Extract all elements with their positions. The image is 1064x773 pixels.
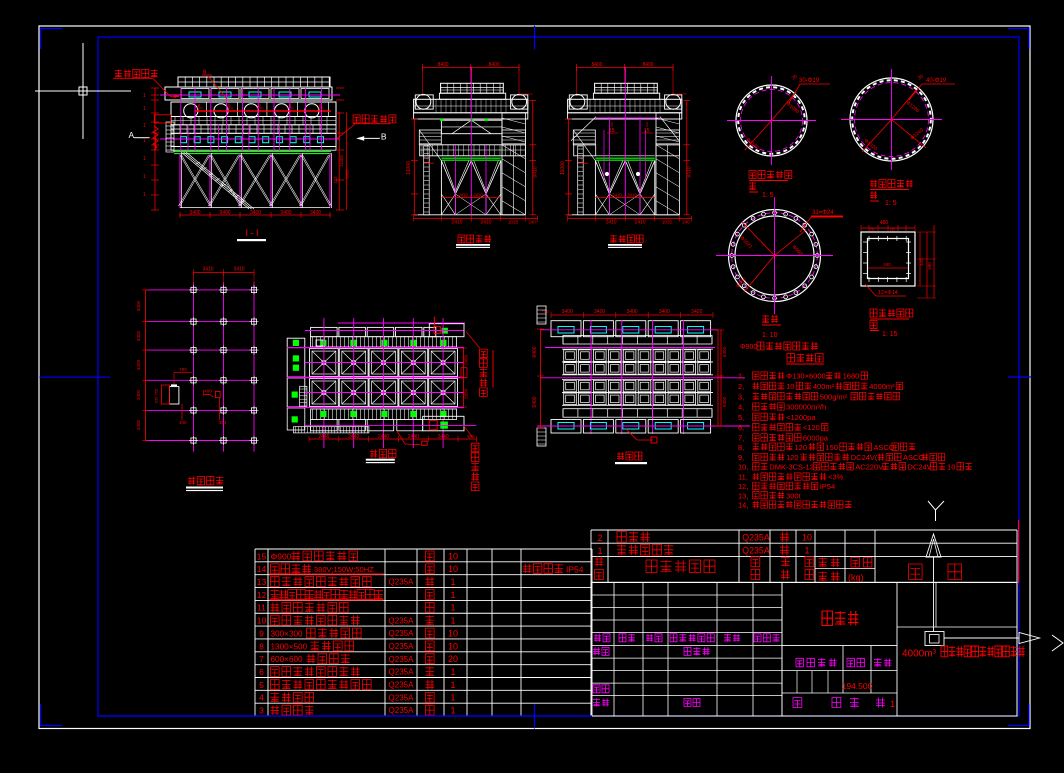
svg-text:6,: 6, xyxy=(738,423,744,432)
svg-text:1: 15: 1: 15 xyxy=(882,331,898,338)
svg-text:3400: 3400 xyxy=(594,309,605,315)
svg-text:9,: 9, xyxy=(738,453,744,462)
svg-text:DC24V: DC24V xyxy=(908,462,932,471)
svg-text:120: 120 xyxy=(795,443,808,452)
svg-text:630: 630 xyxy=(154,396,159,403)
svg-text:1680: 1680 xyxy=(843,372,860,381)
svg-text:400m²: 400m² xyxy=(813,382,835,391)
svg-text:6: 6 xyxy=(259,667,264,677)
svg-text:340: 340 xyxy=(883,262,891,267)
svg-text:DMK-3CS-12: DMK-3CS-12 xyxy=(769,462,814,471)
svg-text:432: 432 xyxy=(333,176,338,184)
svg-text:Q235A: Q235A xyxy=(389,629,415,638)
svg-text:500g/m²: 500g/m² xyxy=(820,392,848,401)
svg-text:755: 755 xyxy=(154,388,159,395)
svg-text:1: 5: 1: 5 xyxy=(885,200,897,207)
svg-text:5,: 5, xyxy=(738,413,744,422)
svg-text:2850: 2850 xyxy=(464,388,469,399)
svg-text:4000m³: 4000m³ xyxy=(902,649,937,660)
svg-text:3400: 3400 xyxy=(136,300,141,311)
svg-text:3400: 3400 xyxy=(280,210,291,216)
svg-text:1: 1 xyxy=(450,680,455,690)
svg-text:10: 10 xyxy=(448,551,458,561)
svg-text:11000: 11000 xyxy=(406,161,412,175)
svg-text:300t: 300t xyxy=(786,491,802,500)
svg-text:12=Φ14: 12=Φ14 xyxy=(878,290,898,296)
svg-text:<120: <120 xyxy=(803,423,820,432)
svg-text:30-Φ19: 30-Φ19 xyxy=(799,78,820,84)
svg-text:3400: 3400 xyxy=(310,210,321,216)
svg-text:8400: 8400 xyxy=(591,62,602,68)
svg-text:5400: 5400 xyxy=(722,346,727,357)
svg-text:10: 10 xyxy=(448,641,458,651)
svg-text:3400: 3400 xyxy=(189,210,200,216)
svg-text:120: 120 xyxy=(786,453,799,462)
svg-text:8400: 8400 xyxy=(437,62,448,68)
svg-text:1,: 1, xyxy=(738,372,744,381)
svg-text:ASCO: ASCO xyxy=(903,453,924,462)
svg-text:2410: 2410 xyxy=(634,219,645,225)
svg-text:.: . xyxy=(853,501,855,510)
svg-text:15: 15 xyxy=(257,551,267,561)
svg-text:A: A xyxy=(129,130,135,140)
svg-text:11,: 11, xyxy=(738,473,748,482)
svg-text:2440: 2440 xyxy=(438,434,449,440)
svg-text:B: B xyxy=(381,132,387,142)
svg-text:8400: 8400 xyxy=(532,396,538,407)
svg-text:1: 1 xyxy=(143,93,146,99)
svg-text:2: 2 xyxy=(597,533,602,543)
svg-text:IP54: IP54 xyxy=(566,565,584,575)
svg-text:10,: 10, xyxy=(738,462,748,471)
svg-text:1: 1 xyxy=(450,590,455,600)
svg-text:3400: 3400 xyxy=(136,359,141,370)
svg-text:11000: 11000 xyxy=(560,161,566,175)
svg-text:<1200pa: <1200pa xyxy=(786,413,816,422)
svg-text:9: 9 xyxy=(259,628,264,638)
svg-text:1: 1 xyxy=(450,603,455,613)
svg-text:3400: 3400 xyxy=(136,419,141,430)
svg-text:Q235A: Q235A xyxy=(389,578,415,587)
svg-text:Q235A: Q235A xyxy=(742,533,770,543)
svg-text:Φ900: Φ900 xyxy=(271,551,292,561)
svg-text:8: 8 xyxy=(259,641,264,651)
svg-text:10: 10 xyxy=(448,628,458,638)
svg-text:12: 12 xyxy=(257,590,267,600)
svg-text:2410: 2410 xyxy=(473,193,483,198)
svg-text:IP54: IP54 xyxy=(820,482,835,491)
svg-text:AC220V: AC220V xyxy=(855,462,883,471)
svg-text:5: 5 xyxy=(259,680,264,690)
svg-text:1: 1 xyxy=(143,106,146,112)
svg-text:2410: 2410 xyxy=(612,193,622,198)
svg-text:Φ130×6000: Φ130×6000 xyxy=(786,372,826,381)
svg-text:300000m³/h: 300000m³/h xyxy=(786,403,826,412)
svg-text:2,: 2, xyxy=(738,382,744,391)
svg-text:3400: 3400 xyxy=(219,210,230,216)
svg-text:Q235A: Q235A xyxy=(742,546,770,556)
svg-text:Q235A: Q235A xyxy=(389,668,415,677)
svg-text:Q235A: Q235A xyxy=(389,693,415,702)
svg-text:2440: 2440 xyxy=(348,434,359,440)
svg-text:14: 14 xyxy=(257,564,267,574)
svg-text:3,: 3, xyxy=(738,392,744,401)
svg-text:31=Φ24: 31=Φ24 xyxy=(812,210,834,216)
svg-text:3410: 3410 xyxy=(202,267,213,273)
svg-text:14,: 14, xyxy=(738,501,748,510)
svg-text:700: 700 xyxy=(179,367,187,372)
svg-text:Q235A: Q235A xyxy=(389,706,415,715)
svg-text:480: 480 xyxy=(880,220,889,226)
svg-text:1: 1 xyxy=(890,699,895,710)
svg-text:400: 400 xyxy=(204,389,212,394)
svg-text:8410: 8410 xyxy=(533,166,539,177)
svg-text:2410: 2410 xyxy=(627,193,637,198)
svg-text:2440: 2440 xyxy=(408,434,419,440)
svg-text:3400: 3400 xyxy=(250,210,261,216)
svg-text:1: 1 xyxy=(804,546,809,556)
svg-text:8420: 8420 xyxy=(345,169,350,179)
svg-text:240: 240 xyxy=(682,219,690,224)
svg-text:400: 400 xyxy=(179,420,187,425)
svg-text:1: 1 xyxy=(143,156,146,162)
svg-text:10: 10 xyxy=(448,564,458,574)
svg-text:2440: 2440 xyxy=(378,434,389,440)
svg-text:1025: 1025 xyxy=(662,219,673,224)
svg-text:DC24V(: DC24V( xyxy=(851,453,878,462)
svg-text:1: 5: 1: 5 xyxy=(762,192,774,199)
svg-text:7: 7 xyxy=(259,654,264,664)
svg-text:3400: 3400 xyxy=(659,309,670,315)
svg-text:(kg): (kg) xyxy=(848,573,864,583)
svg-text:3400: 3400 xyxy=(691,309,702,315)
svg-text:5400: 5400 xyxy=(722,396,727,407)
svg-text:10: 10 xyxy=(947,462,955,471)
svg-text:500: 500 xyxy=(467,434,475,439)
svg-text:480: 480 xyxy=(927,262,932,270)
svg-text:2410: 2410 xyxy=(451,219,462,225)
svg-text:11: 11 xyxy=(257,603,266,613)
svg-text:1: 1 xyxy=(450,616,455,626)
svg-text:70: 70 xyxy=(869,227,875,232)
svg-text:1025: 1025 xyxy=(508,219,519,224)
svg-text:3410: 3410 xyxy=(233,267,244,273)
svg-text:<3%: <3% xyxy=(828,473,844,482)
svg-text:2410: 2410 xyxy=(458,193,468,198)
svg-text:2440: 2440 xyxy=(318,434,329,440)
svg-text:11000: 11000 xyxy=(339,155,344,167)
svg-text:10: 10 xyxy=(786,382,794,391)
svg-text:8400: 8400 xyxy=(488,62,499,68)
svg-text:240: 240 xyxy=(528,219,536,224)
svg-text:1300×500: 1300×500 xyxy=(271,642,308,651)
svg-text:70: 70 xyxy=(889,227,895,232)
svg-text:3400: 3400 xyxy=(626,309,637,315)
svg-text:1: 10: 1: 10 xyxy=(762,332,778,339)
svg-text:4000m²: 4000m² xyxy=(869,382,895,391)
svg-text:410: 410 xyxy=(919,258,924,266)
svg-text:3400: 3400 xyxy=(136,330,141,341)
svg-text:Q235A: Q235A xyxy=(389,642,415,651)
svg-text:1: 1 xyxy=(450,667,455,677)
svg-text:1: 1 xyxy=(143,138,146,144)
svg-text:7,: 7, xyxy=(738,434,744,443)
svg-text:4,: 4, xyxy=(738,403,744,412)
svg-text:1: 1 xyxy=(450,577,455,587)
svg-text:2410: 2410 xyxy=(605,219,616,225)
svg-text:12,: 12, xyxy=(738,482,748,491)
svg-text:1: 1 xyxy=(143,192,146,198)
svg-text:4: 4 xyxy=(259,693,264,703)
svg-text:8400: 8400 xyxy=(532,346,538,357)
svg-text:10: 10 xyxy=(802,533,812,543)
svg-text:10: 10 xyxy=(257,616,267,626)
svg-text:1: 1 xyxy=(143,123,146,129)
svg-text:Q235A: Q235A xyxy=(389,616,415,625)
svg-text:2410: 2410 xyxy=(480,219,491,225)
svg-text:Q235A: Q235A xyxy=(389,655,415,664)
svg-text:600×600: 600×600 xyxy=(271,655,304,664)
svg-text:1: 1 xyxy=(450,706,455,716)
svg-text:3400: 3400 xyxy=(136,389,141,400)
svg-text:3400: 3400 xyxy=(562,309,573,315)
svg-text:1: 1 xyxy=(597,546,602,556)
svg-text:Q235A: Q235A xyxy=(389,681,415,690)
svg-text:6000pa: 6000pa xyxy=(803,434,829,443)
svg-text:1: 1 xyxy=(143,174,146,180)
svg-text:8400: 8400 xyxy=(642,62,653,68)
svg-text:8,: 8, xyxy=(738,443,744,452)
svg-text:8410: 8410 xyxy=(687,166,693,177)
svg-text:380V;150W;50HZ: 380V;150W;50HZ xyxy=(314,565,374,574)
svg-text:394: 394 xyxy=(219,420,227,425)
svg-text:40-Φ19: 40-Φ19 xyxy=(926,78,947,84)
svg-text:3: 3 xyxy=(259,706,264,716)
svg-text:150: 150 xyxy=(826,443,839,452)
svg-text:194.500: 194.500 xyxy=(842,681,873,691)
svg-text:Φ900: Φ900 xyxy=(740,344,757,351)
svg-text:300×300: 300×300 xyxy=(271,629,304,638)
svg-text:1: 1 xyxy=(450,693,455,703)
svg-text:13: 13 xyxy=(257,577,267,587)
svg-text:20: 20 xyxy=(448,654,458,664)
svg-text:13,: 13, xyxy=(738,491,748,500)
svg-text:2850: 2850 xyxy=(464,354,469,365)
svg-text:I - I: I - I xyxy=(246,228,259,238)
